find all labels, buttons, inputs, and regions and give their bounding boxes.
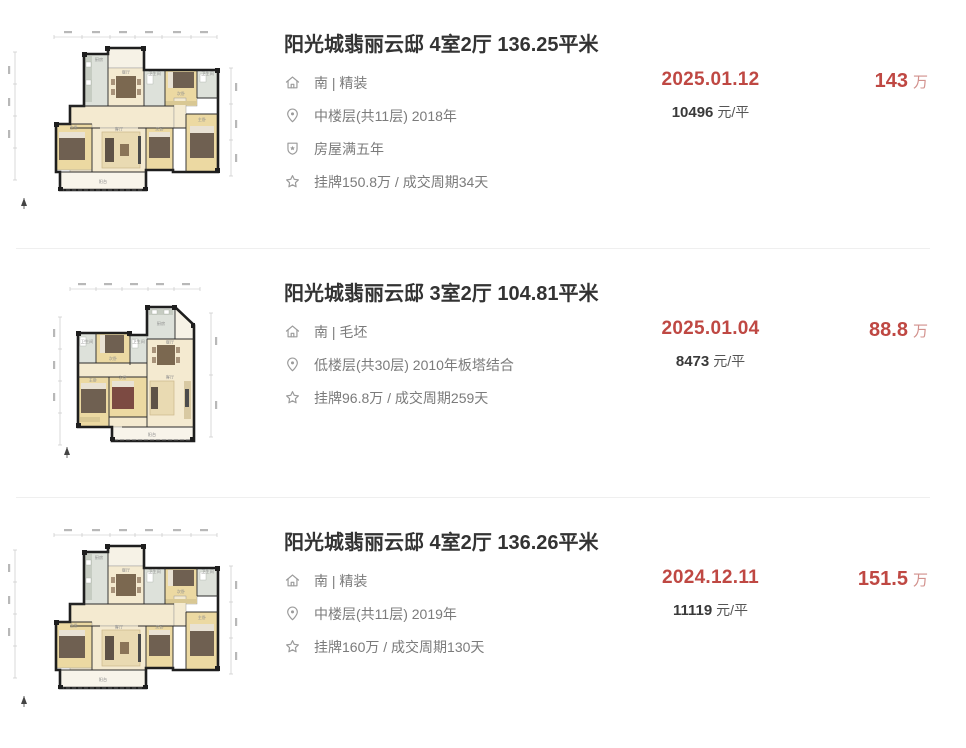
detail-row: 南 | 精装: [284, 564, 608, 597]
detail-text: 南 | 精装: [314, 571, 367, 591]
listing-card[interactable]: 阳光城翡丽云邸 4室2厅 136.25平米 南 | 精装 中楼层(共11层) 2…: [0, 0, 966, 248]
total-price-unit: 万: [913, 572, 928, 589]
deal-info: 2025.01.04 8473元/平 88.8万: [608, 315, 928, 414]
location-icon: [284, 605, 301, 622]
detail-text: 低楼层(共30层) 2010年板塔结合: [314, 355, 514, 375]
listing-title[interactable]: 阳光城翡丽云邸 3室2厅 104.81平米: [284, 277, 928, 306]
detail-row: 中楼层(共11层) 2018年: [284, 99, 608, 132]
listing-card[interactable]: 阳光城翡丽云邸 4室2厅 136.26平米 南 | 精装 中楼层(共11层) 2…: [0, 498, 966, 748]
deal-date: 2025.01.04: [608, 318, 813, 340]
total-price-value: 88.8: [869, 319, 908, 341]
total-price: 151.5万: [813, 567, 928, 591]
deal-date: 2025.01.12: [608, 69, 813, 91]
floorplan-svg: [4, 275, 240, 467]
unit-price: 11119元/平: [608, 600, 813, 620]
shield-icon: [284, 140, 301, 157]
star-icon: [284, 389, 301, 406]
detail-row: 南 | 精装: [284, 66, 608, 99]
floorplan-svg: [4, 524, 240, 716]
floorplan-image[interactable]: [4, 524, 240, 716]
floorplan-image[interactable]: [4, 275, 240, 467]
total-price-value: 151.5: [858, 568, 908, 590]
detail-text: 挂牌160万 / 成交周期130天: [314, 637, 484, 657]
detail-row: 中楼层(共11层) 2019年: [284, 597, 608, 630]
total-price: 88.8万: [813, 318, 928, 342]
detail-row: 低楼层(共30层) 2010年板塔结合: [284, 348, 608, 381]
listing-title[interactable]: 阳光城翡丽云邸 4室2厅 136.25平米: [284, 28, 928, 57]
detail-text: 南 | 精装: [314, 73, 367, 93]
total-price-unit: 万: [913, 74, 928, 91]
floorplan-svg: [4, 26, 240, 218]
star-icon: [284, 173, 301, 190]
unit-price: 8473元/平: [608, 351, 813, 371]
detail-row: 南 | 毛坯: [284, 315, 608, 348]
listing-content: 阳光城翡丽云邸 3室2厅 104.81平米 南 | 毛坯 低楼层(共30层) 2…: [284, 273, 928, 497]
detail-row: 挂牌160万 / 成交周期130天: [284, 630, 608, 663]
total-price-unit: 万: [913, 323, 928, 340]
detail-text: 中楼层(共11层) 2019年: [314, 604, 457, 624]
detail-text: 南 | 毛坯: [314, 322, 367, 342]
unit-price-value: 8473: [676, 353, 709, 370]
listing-details: 南 | 精装 中楼层(共11层) 2019年 挂牌160万 / 成交周期130天: [284, 564, 608, 663]
detail-row: 挂牌96.8万 / 成交周期259天: [284, 381, 608, 414]
unit-price-suffix: 元/平: [713, 353, 745, 369]
total-price: 143万: [813, 69, 928, 93]
location-icon: [284, 107, 301, 124]
listing-details: 南 | 毛坯 低楼层(共30层) 2010年板塔结合 挂牌96.8万 / 成交周…: [284, 315, 608, 414]
listing-card[interactable]: 阳光城翡丽云邸 3室2厅 104.81平米 南 | 毛坯 低楼层(共30层) 2…: [0, 249, 966, 497]
listing-title[interactable]: 阳光城翡丽云邸 4室2厅 136.26平米: [284, 526, 928, 555]
deal-date: 2024.12.11: [608, 567, 813, 589]
deal-info: 2024.12.11 11119元/平 151.5万: [608, 564, 928, 663]
house-icon: [284, 74, 301, 91]
house-icon: [284, 572, 301, 589]
unit-price-value: 11119: [673, 602, 712, 619]
detail-text: 房屋满五年: [314, 139, 384, 159]
detail-row: 挂牌150.8万 / 成交周期34天: [284, 165, 608, 198]
detail-text: 中楼层(共11层) 2018年: [314, 106, 457, 126]
floorplan-image[interactable]: [4, 26, 240, 218]
location-icon: [284, 356, 301, 373]
detail-text: 挂牌96.8万 / 成交周期259天: [314, 388, 488, 408]
unit-price-suffix: 元/平: [717, 104, 749, 120]
sold-listings-page: 阳光城翡丽云邸 4室2厅 136.25平米 南 | 精装 中楼层(共11层) 2…: [0, 0, 966, 748]
unit-price-suffix: 元/平: [716, 602, 748, 618]
unit-price: 10496元/平: [608, 102, 813, 122]
house-icon: [284, 323, 301, 340]
total-price-value: 143: [875, 70, 908, 92]
deal-info: 2025.01.12 10496元/平 143万: [608, 66, 928, 198]
star-icon: [284, 638, 301, 655]
detail-text: 挂牌150.8万 / 成交周期34天: [314, 172, 488, 192]
detail-row: 房屋满五年: [284, 132, 608, 165]
listing-details: 南 | 精装 中楼层(共11层) 2018年 房屋满五年 挂牌150.8万 / …: [284, 66, 608, 198]
listing-content: 阳光城翡丽云邸 4室2厅 136.25平米 南 | 精装 中楼层(共11层) 2…: [284, 24, 928, 248]
listing-content: 阳光城翡丽云邸 4室2厅 136.26平米 南 | 精装 中楼层(共11层) 2…: [284, 522, 928, 748]
unit-price-value: 10496: [672, 104, 714, 121]
